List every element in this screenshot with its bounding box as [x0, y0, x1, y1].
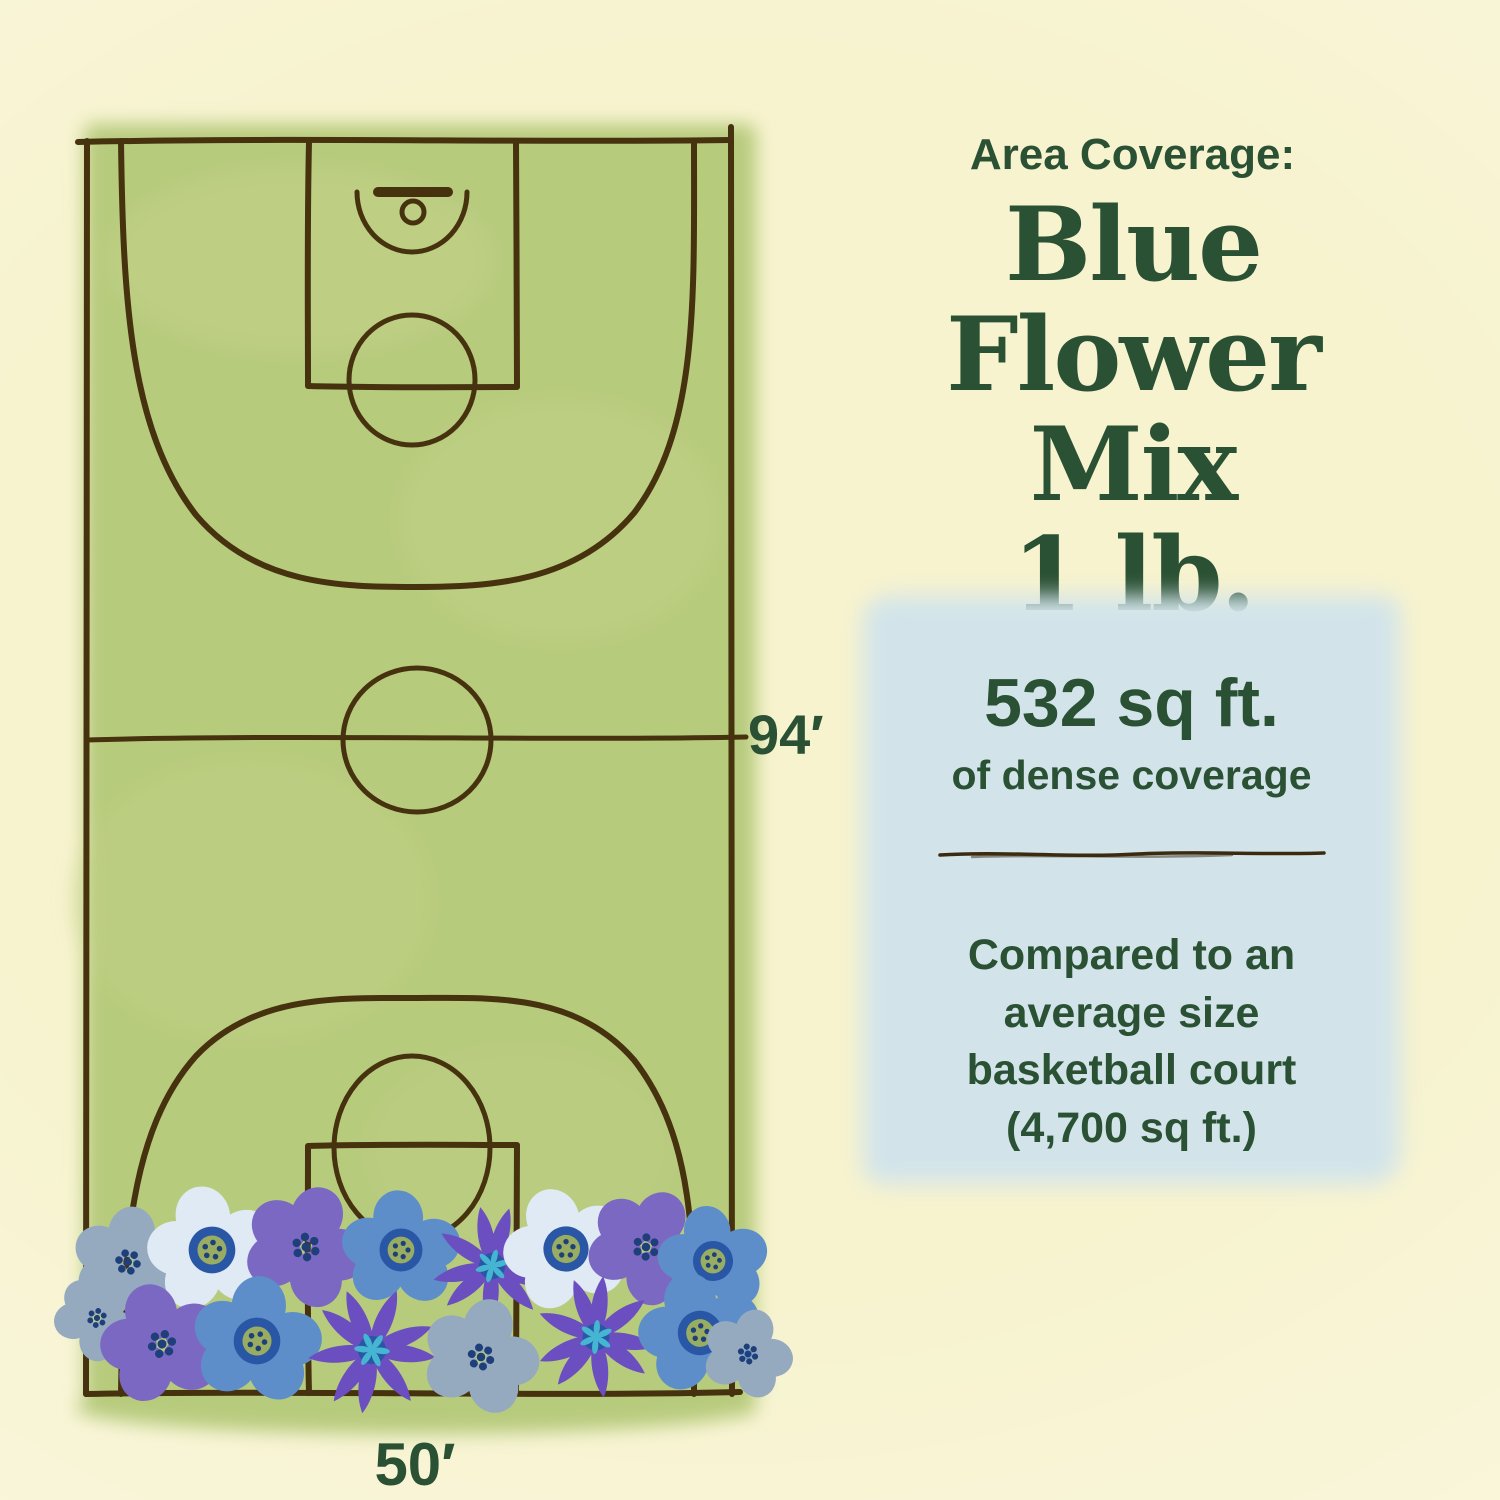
- infographic-canvas: 94′ 50′ Area Coverage: Blue Flower Mix 1…: [0, 0, 1500, 1500]
- coverage-amount: 532 sq ft.: [855, 588, 1408, 742]
- court-height-label: 94′: [748, 702, 824, 767]
- court-boundary-left: [86, 141, 87, 1394]
- comparison-text: Compared to an average size basketball c…: [855, 927, 1408, 1157]
- coverage-subtext: of dense coverage: [855, 752, 1408, 799]
- comparison-line-3: basketball court: [855, 1042, 1408, 1100]
- product-title-line-2: Flower Mix: [838, 300, 1428, 520]
- product-title-line-1: Blue: [838, 190, 1428, 300]
- comparison-line-4: (4,700 sq ft.): [855, 1100, 1408, 1158]
- half-court-line: [86, 737, 746, 740]
- comparison-line-1: Compared to an: [855, 927, 1408, 985]
- court-boundary-right: [731, 127, 733, 1394]
- product-title: Blue Flower Mix 1 lb.: [838, 190, 1428, 631]
- hand-drawn-divider: [932, 845, 1332, 863]
- comparison-line-2: average size: [855, 985, 1408, 1043]
- court-width-label: 50′: [300, 1430, 530, 1499]
- court-boundary-bottom: [86, 1392, 740, 1394]
- coverage-box: 532 sq ft. of dense coverage Compared to…: [855, 588, 1408, 1192]
- section-eyebrow: Area Coverage:: [845, 130, 1420, 180]
- court-boundary-top: [78, 140, 731, 142]
